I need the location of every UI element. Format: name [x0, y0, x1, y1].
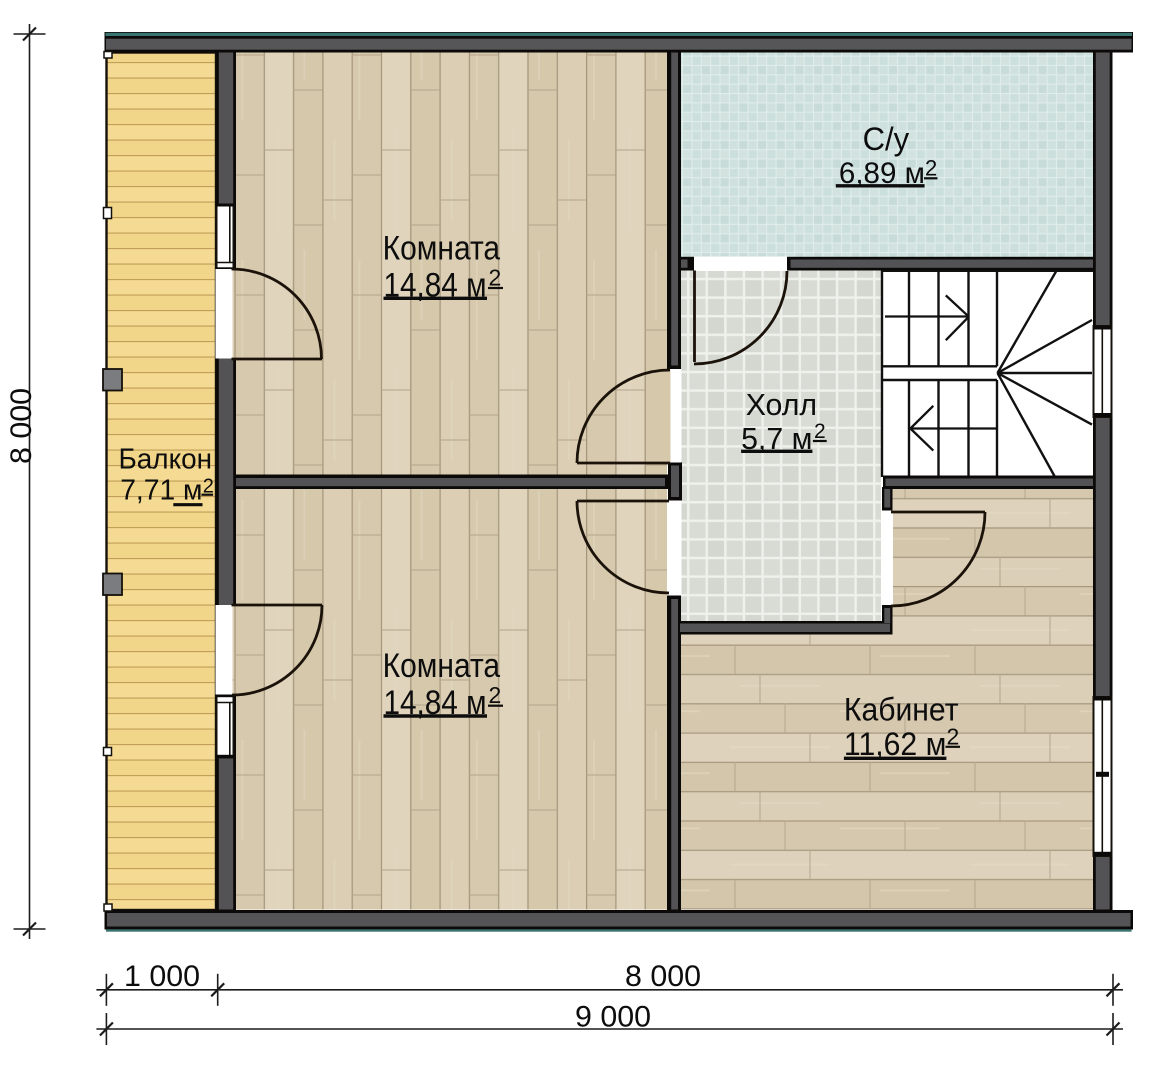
svg-text:Кабинет: Кабинет — [844, 692, 959, 728]
svg-text:2: 2 — [947, 724, 960, 750]
svg-text:2: 2 — [814, 420, 826, 443]
svg-text:2: 2 — [489, 682, 502, 708]
svg-text:Комната: Комната — [383, 229, 501, 267]
svg-text:Комната: Комната — [383, 647, 501, 685]
svg-text:8 000: 8 000 — [5, 388, 38, 464]
svg-text:2: 2 — [489, 265, 502, 291]
svg-text:Балкон: Балкон — [119, 444, 213, 476]
svg-text:1 000: 1 000 — [124, 960, 200, 993]
svg-text:Холл: Холл — [746, 387, 817, 422]
svg-text:7,71 м: 7,71 м — [120, 474, 202, 506]
svg-text:С/у: С/у — [863, 121, 910, 157]
svg-text:9 000: 9 000 — [575, 1001, 651, 1034]
svg-text:8 000: 8 000 — [625, 960, 701, 993]
svg-text:2: 2 — [925, 156, 937, 181]
